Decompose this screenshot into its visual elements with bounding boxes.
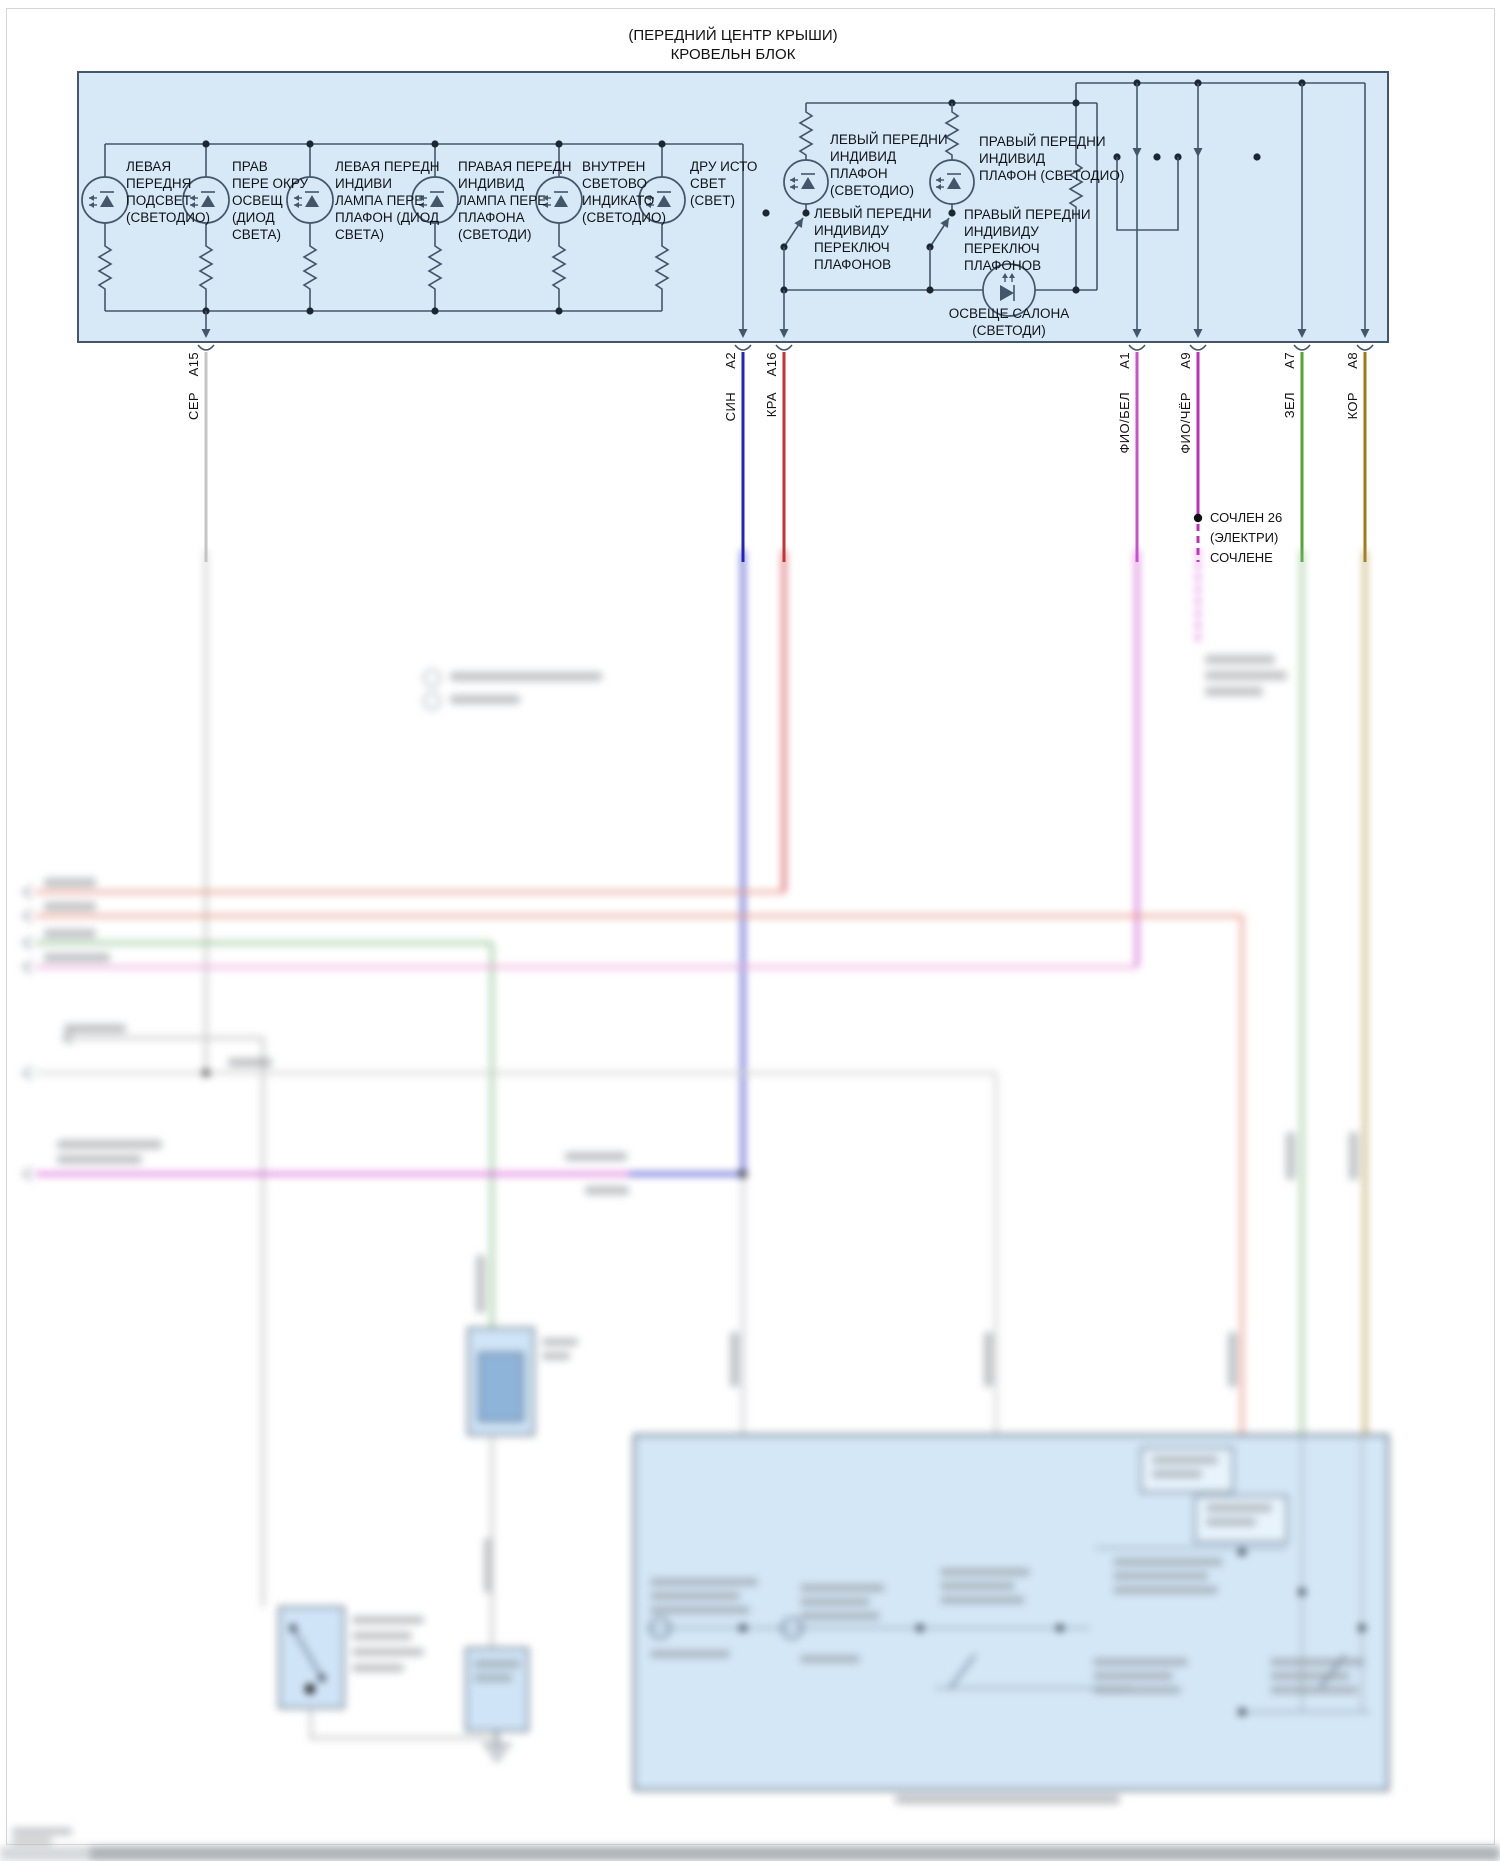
pin-a8: A8 <box>1345 352 1360 369</box>
blurred-relay-box <box>466 1328 578 1759</box>
blurred-lower-schematic <box>0 550 1500 1861</box>
blurred-module-box <box>634 1435 1388 1804</box>
label-left-front-dome: ЛЕВЫЙ ПЕРЕДНИ ИНДИВИД ПЛАФОН (СВЕТОДИО) <box>830 131 948 199</box>
label-right-front-map-lamp: ПРАВАЯ ПЕРЕДН ИНДИВИД ЛАМПА ПЕРЕ ПЛАФОНА… <box>458 158 571 243</box>
pin-a16: A16 <box>764 352 779 376</box>
wirecolor-a1: ФИО/БЕЛ <box>1117 392 1132 453</box>
label-cabin-light: ОСВЕЩЕ САЛОНА (СВЕТОДИ) <box>929 305 1089 339</box>
wiring-diagram-page: (ПЕРЕДНИЙ ЦЕНТР КРЫШИ) КРОВЕЛЬН БЛОК <box>0 0 1500 1861</box>
blurred-legend <box>424 670 602 709</box>
label-right-front-dome-switch: ПРАВЫЙ ПЕРЕДНИ ИНДИВИДУ ПЕРЕКЛЮЧ ПЛАФОНО… <box>964 206 1091 274</box>
pin-a7: A7 <box>1282 352 1297 369</box>
wirecolor-a16: КРА <box>764 392 779 417</box>
label-left-front-dome-switch: ЛЕВЫЙ ПЕРЕДНИ ИНДИВИДУ ПЕРЕКЛЮЧ ПЛАФОНОВ <box>814 205 932 273</box>
connector-pins <box>198 345 1373 350</box>
label-right-front-dome: ПРАВЫЙ ПЕРЕДНИ ИНДИВИД ПЛАФОН (СВЕТОДИО) <box>979 133 1124 184</box>
wirecolor-a7: ЗЕЛ <box>1282 392 1297 418</box>
pin-a2: A2 <box>723 352 738 369</box>
blurred-switch-box <box>279 1607 497 1738</box>
bottom-bar <box>0 1846 1500 1861</box>
label-left-front-map-lamp: ЛЕВАЯ ПЕРЕДН ИНДИВИ ЛАМПА ПЕРЕ ПЛАФОН (Д… <box>335 158 440 243</box>
label-right-front-ambient: ПРАВ ПЕРЕ ОКРУ ОСВЕЩ (ДИОД СВЕТА) <box>232 158 308 243</box>
pin-a9: A9 <box>1178 352 1193 369</box>
splice-dot <box>1194 514 1202 522</box>
wirecolor-a8: КОР <box>1345 392 1360 419</box>
roof-block-schematic <box>0 0 1500 562</box>
harness-wires <box>206 352 1365 562</box>
label-other-light-source: ДРУ ИСТО СВЕТ (СВЕТ) <box>690 158 757 209</box>
pin-a1: A1 <box>1117 352 1132 369</box>
wirecolor-a15: СЕР <box>186 392 201 420</box>
wirecolor-a2: СИН <box>723 392 738 421</box>
pin-a15: A15 <box>186 352 201 376</box>
wirecolor-a9: ФИО/ЧЁР <box>1178 392 1193 454</box>
label-interior-indicator: ВНУТРЕН СВЕТОВО ИНДИКАТО (СВЕТОДИО) <box>582 158 666 226</box>
label-left-front-backlight: ЛЕВАЯ ПЕРЕДНЯ ПОДСВЕТ (СВЕТОДИО) <box>126 158 210 226</box>
